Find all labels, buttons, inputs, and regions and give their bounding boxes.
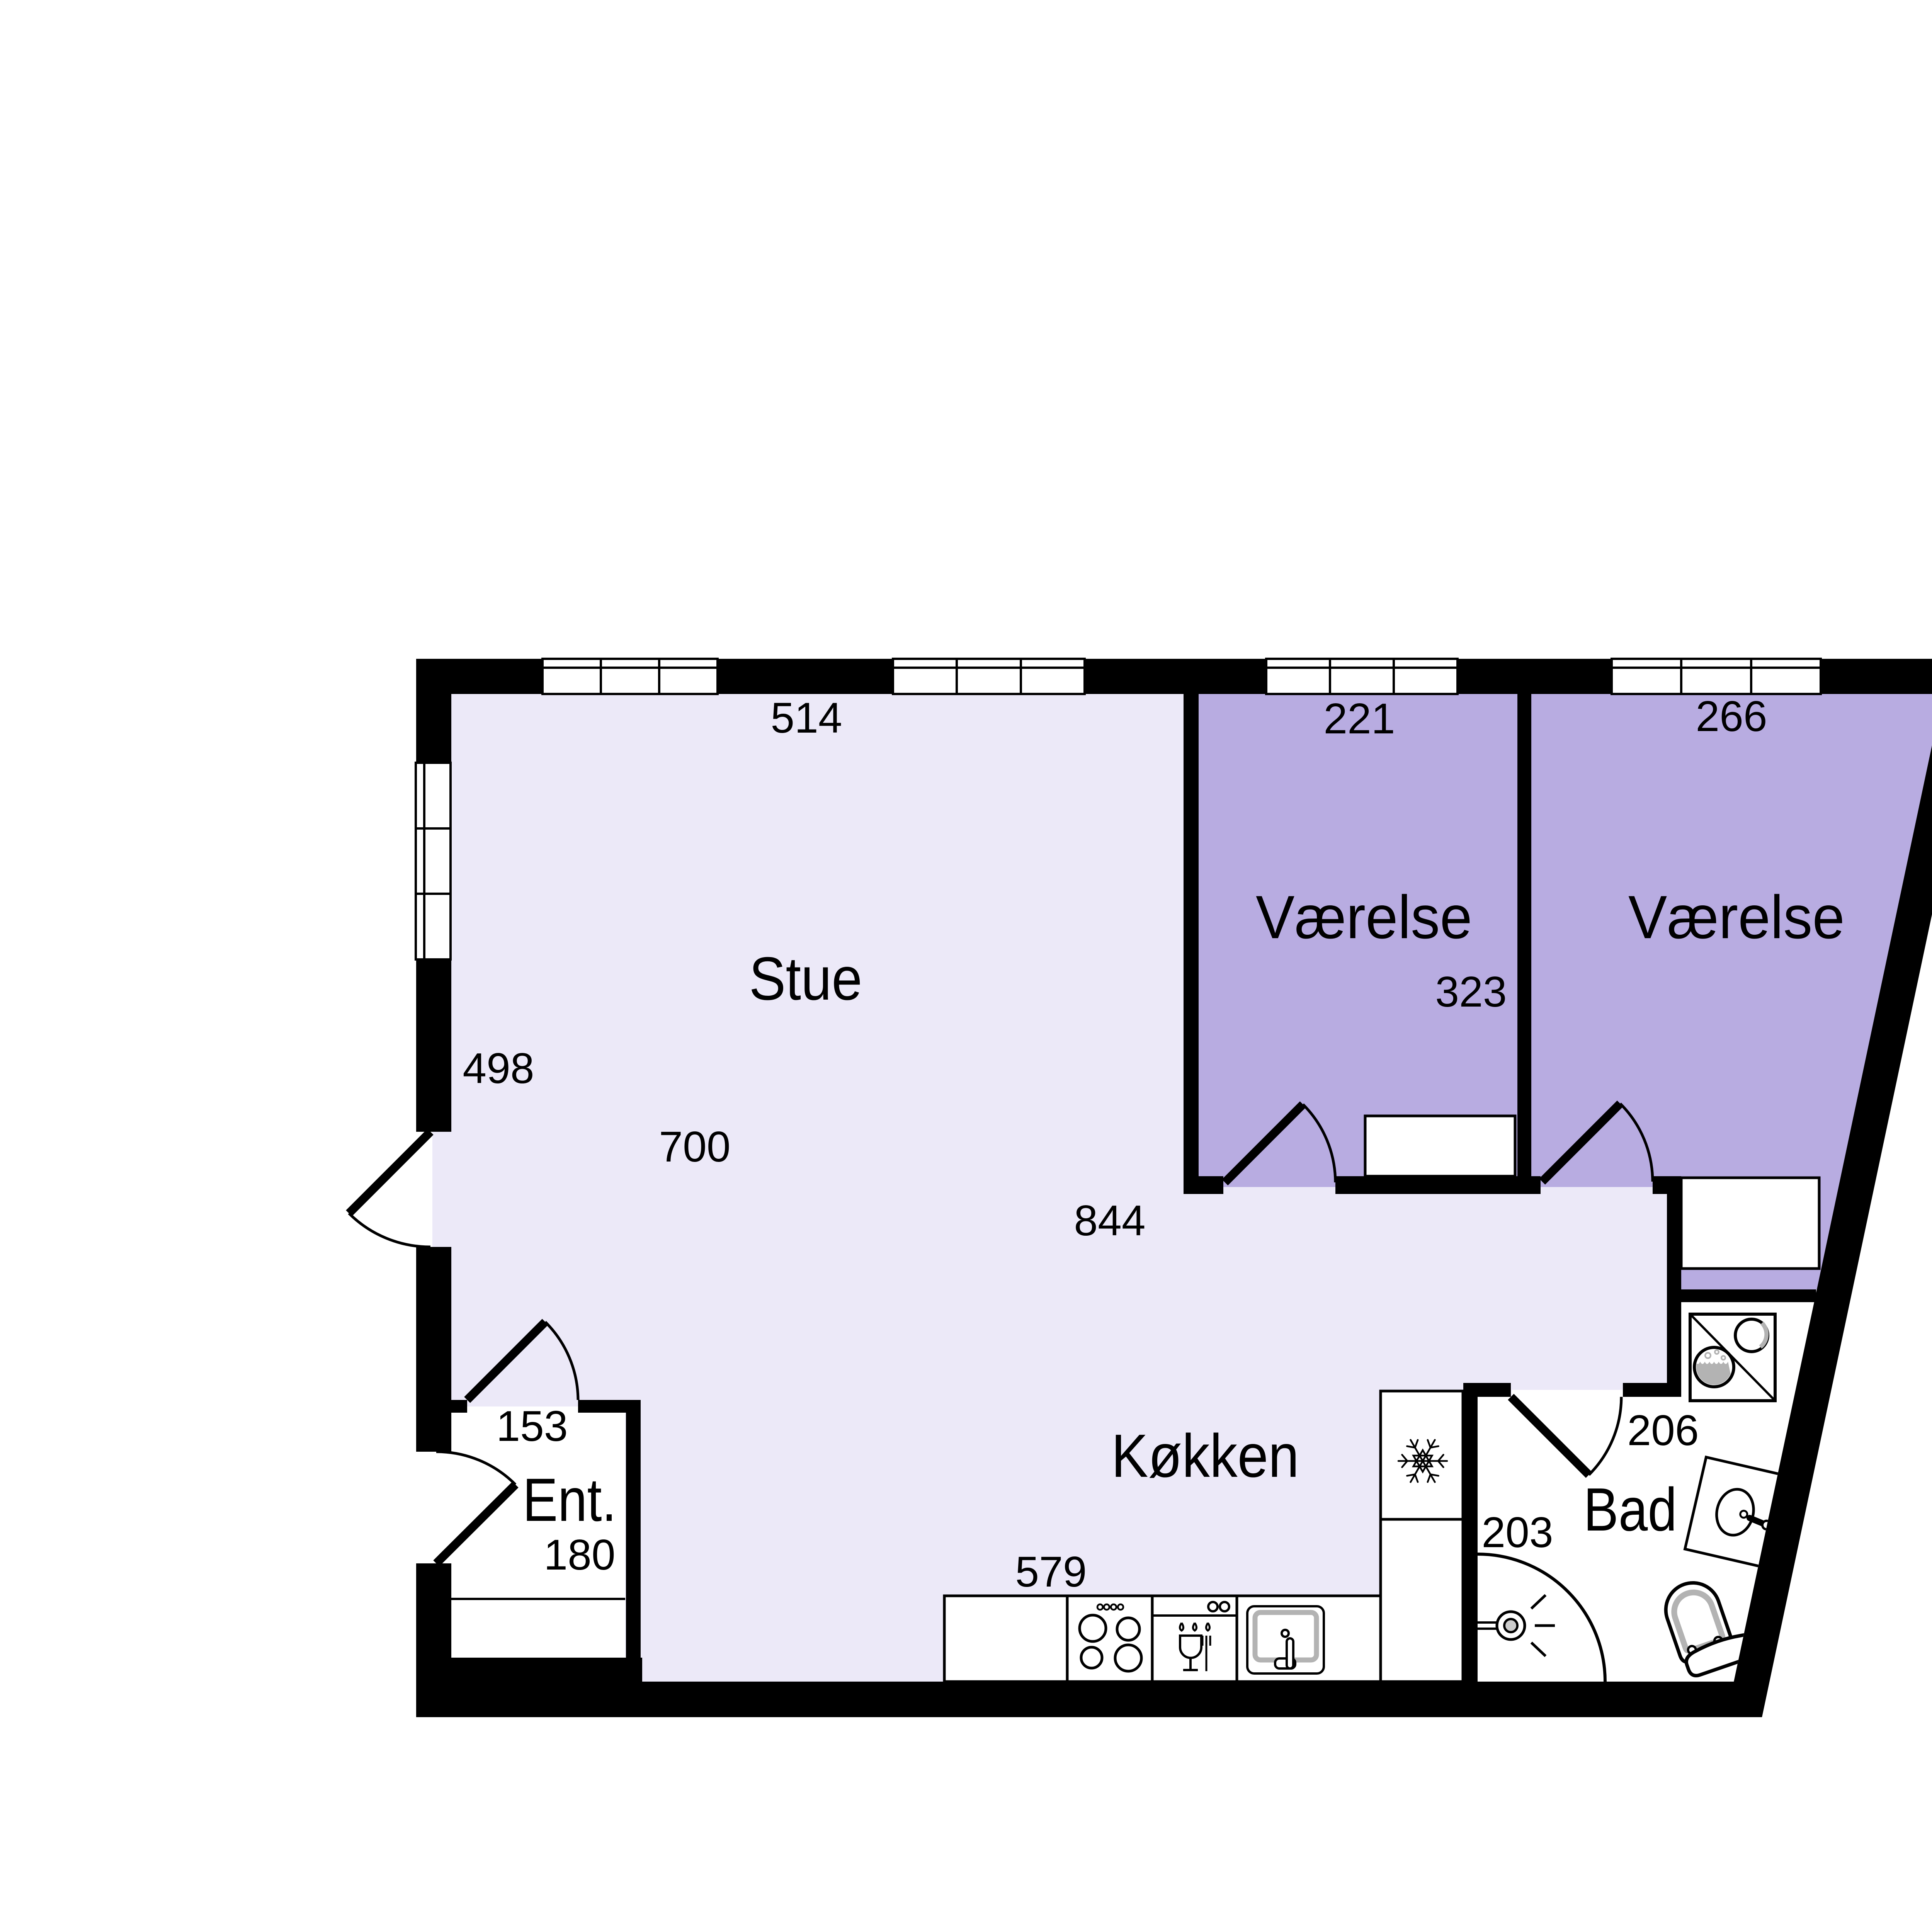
- svg-text:206: 206: [1627, 1406, 1699, 1454]
- svg-text:323: 323: [1435, 968, 1507, 1016]
- svg-text:700: 700: [659, 1123, 730, 1171]
- svg-text:844: 844: [1074, 1197, 1145, 1245]
- svg-text:Stue: Stue: [749, 945, 862, 1013]
- svg-text:Køkken: Køkken: [1111, 1422, 1299, 1490]
- svg-text:180: 180: [544, 1531, 615, 1579]
- svg-text:221: 221: [1323, 695, 1395, 743]
- svg-text:Bad: Bad: [1583, 1476, 1677, 1544]
- svg-text:203: 203: [1481, 1509, 1553, 1556]
- svg-text:153: 153: [496, 1402, 568, 1450]
- svg-text:Værelse: Værelse: [1256, 883, 1472, 951]
- svg-text:Værelse: Værelse: [1628, 883, 1845, 951]
- svg-text:498: 498: [463, 1044, 534, 1092]
- svg-text:266: 266: [1696, 692, 1767, 740]
- svg-text:Ent.: Ent.: [523, 1466, 617, 1534]
- svg-text:579: 579: [1015, 1548, 1087, 1596]
- svg-text:514: 514: [770, 694, 842, 742]
